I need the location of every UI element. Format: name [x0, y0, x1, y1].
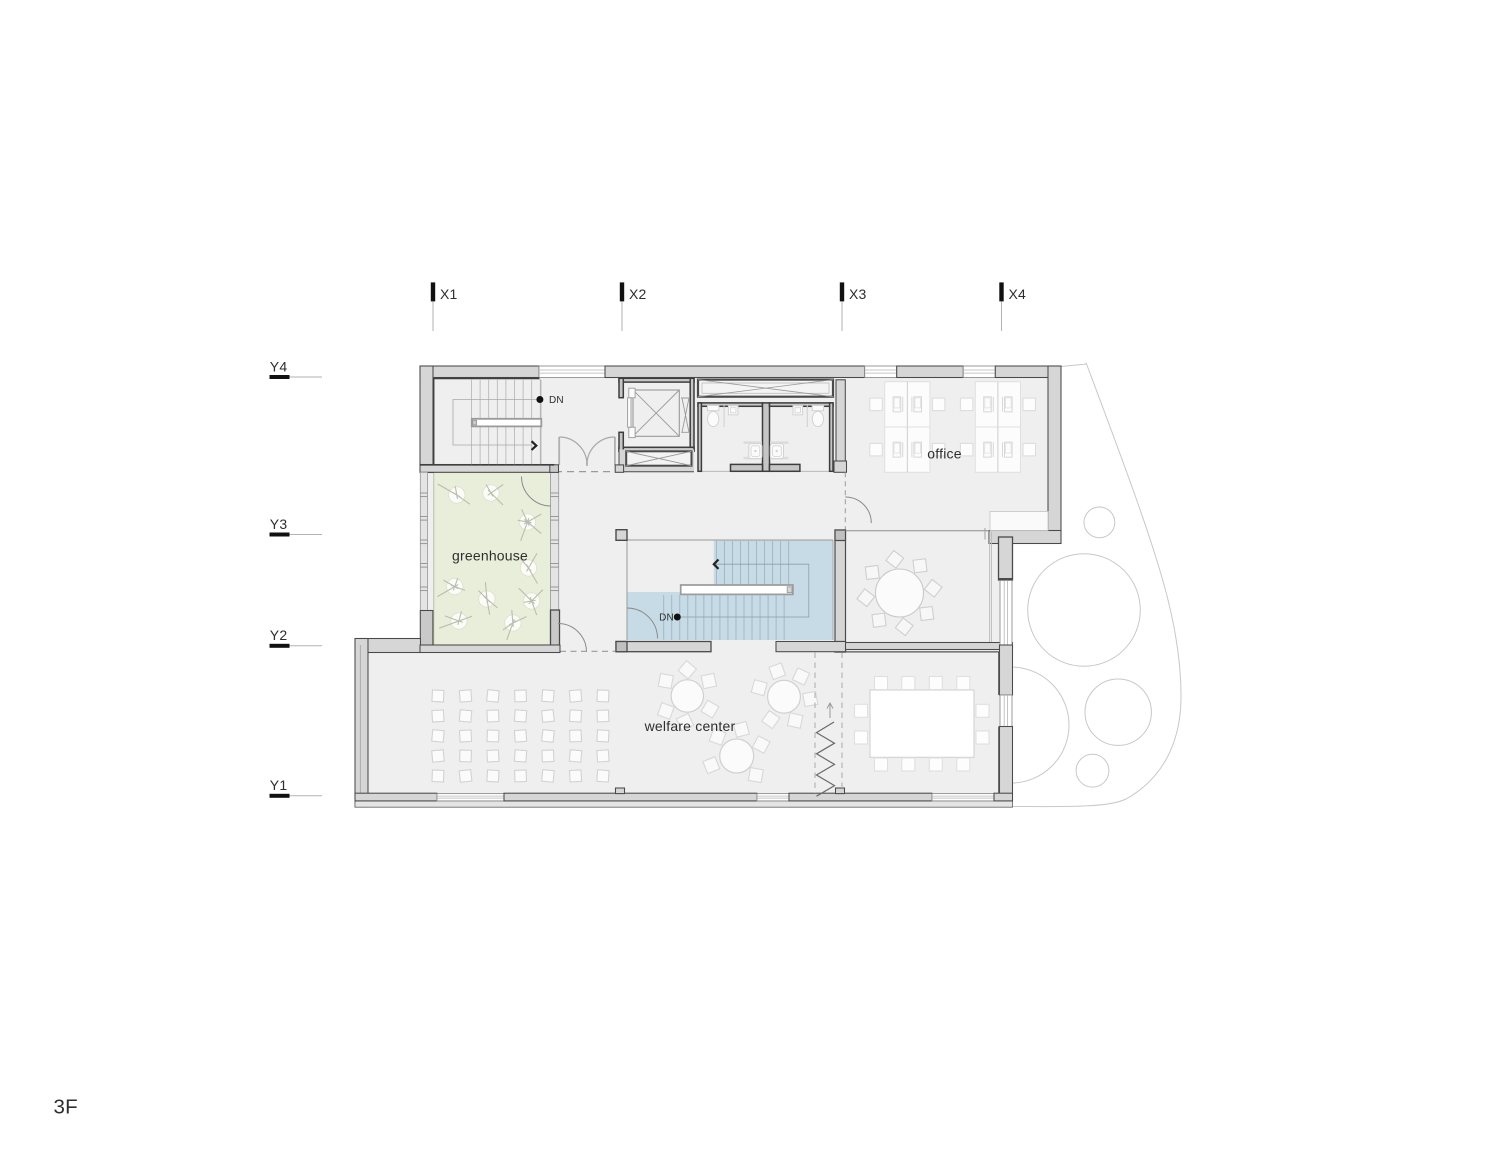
svg-text:3F: 3F [54, 1096, 78, 1119]
svg-text:X3: X3 [849, 286, 867, 302]
svg-text:Y1: Y1 [270, 777, 288, 793]
svg-text:welfare center: welfare center [644, 718, 736, 734]
svg-text:Y3: Y3 [270, 516, 288, 532]
svg-text:Y2: Y2 [270, 627, 288, 643]
svg-text:Y4: Y4 [270, 358, 288, 374]
svg-text:DN: DN [659, 613, 674, 624]
svg-text:DN: DN [549, 395, 564, 406]
svg-text:X1: X1 [440, 286, 458, 302]
svg-text:X4: X4 [1009, 286, 1027, 302]
svg-text:office: office [927, 446, 961, 462]
svg-text:X2: X2 [629, 286, 647, 302]
svg-text:greenhouse: greenhouse [452, 548, 528, 564]
